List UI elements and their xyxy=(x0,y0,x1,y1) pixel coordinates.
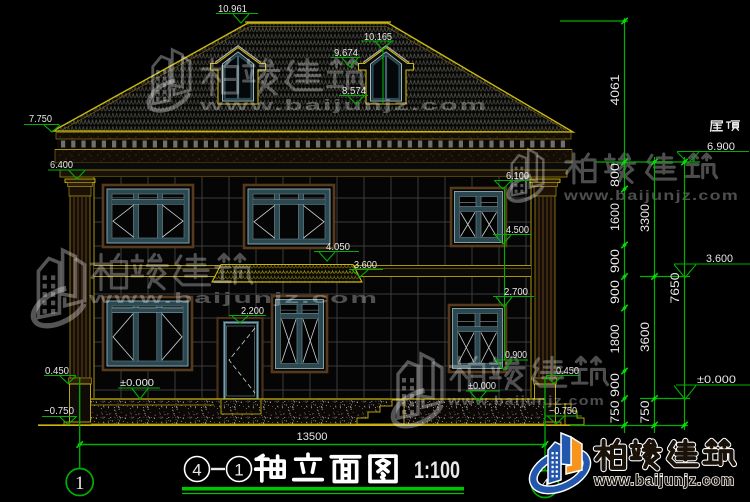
svg-text:1800: 1800 xyxy=(608,324,622,353)
svg-text:1600: 1600 xyxy=(608,203,622,231)
svg-text:900: 900 xyxy=(608,373,622,397)
svg-text:−0.750: −0.750 xyxy=(44,406,74,417)
svg-text:800: 800 xyxy=(608,163,622,187)
svg-text:0.900: 0.900 xyxy=(505,350,527,361)
svg-text:3.600: 3.600 xyxy=(706,253,733,265)
svg-text:±0.000: ±0.000 xyxy=(120,378,154,389)
svg-text:7650: 7650 xyxy=(668,272,682,303)
svg-text:±0.000: ±0.000 xyxy=(697,374,736,386)
svg-text:750: 750 xyxy=(608,400,622,423)
svg-text:13500: 13500 xyxy=(297,431,328,443)
svg-text:6.400: 6.400 xyxy=(50,160,73,171)
svg-text:4061: 4061 xyxy=(608,74,622,105)
svg-text:www.baijunjz.com: www.baijunjz.com xyxy=(563,188,739,203)
svg-text:www.baijunjz.com: www.baijunjz.com xyxy=(198,97,488,114)
svg-text:1: 1 xyxy=(75,473,85,494)
svg-text:−0.750: −0.750 xyxy=(549,406,577,417)
svg-text:3300: 3300 xyxy=(638,204,652,232)
svg-text:900: 900 xyxy=(608,280,622,304)
svg-text:www.baijunjz.com: www.baijunjz.com xyxy=(593,472,735,489)
svg-text:1:100: 1:100 xyxy=(414,457,460,484)
svg-text:±0.000: ±0.000 xyxy=(468,381,496,392)
svg-text:7.750: 7.750 xyxy=(29,114,52,125)
svg-text:4: 4 xyxy=(192,461,201,480)
svg-text:1: 1 xyxy=(234,461,243,480)
svg-text:900: 900 xyxy=(608,249,622,273)
svg-text:www.baijunjz.com: www.baijunjz.com xyxy=(87,290,379,307)
svg-text:750: 750 xyxy=(638,400,652,423)
svg-text:www.baijunjz.com: www.baijunjz.com xyxy=(447,394,605,408)
svg-text:3600: 3600 xyxy=(638,322,652,352)
